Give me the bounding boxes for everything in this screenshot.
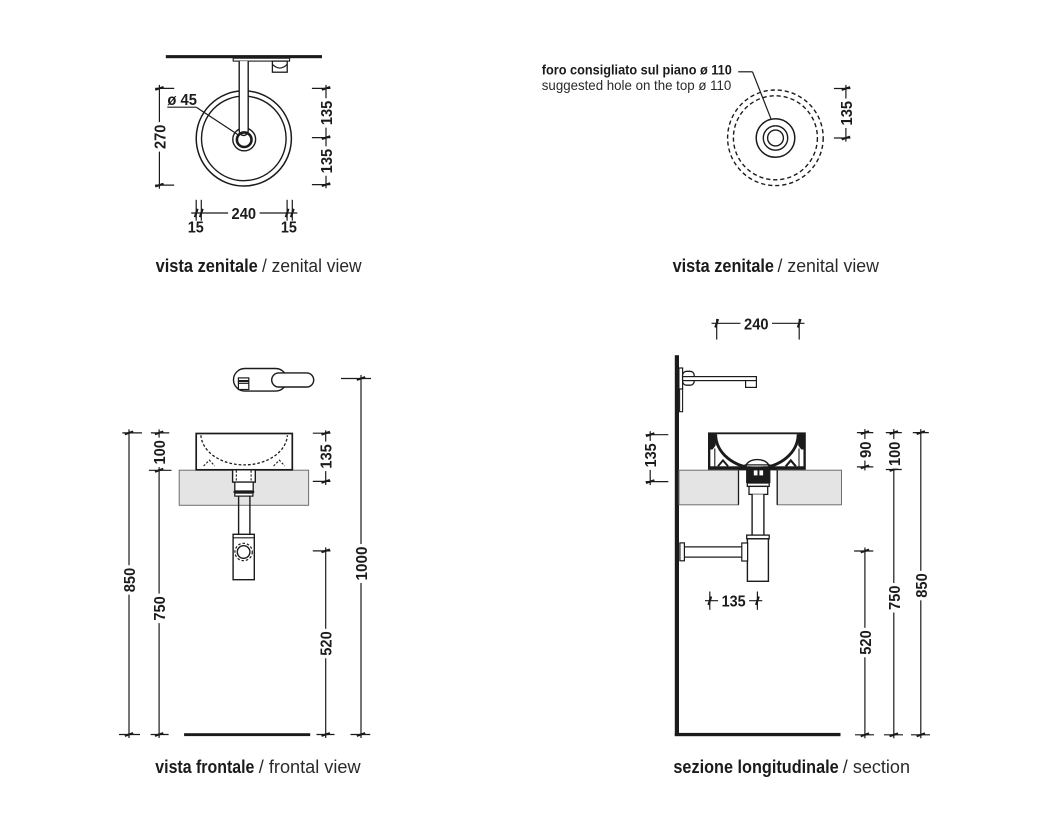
svg-text:vista zenitale: vista zenitale <box>156 256 258 276</box>
svg-text:270: 270 <box>152 124 169 149</box>
svg-text:90: 90 <box>858 441 875 458</box>
svg-text:/ frontal view: / frontal view <box>259 757 362 777</box>
svg-text:1000: 1000 <box>354 546 371 580</box>
svg-text:135: 135 <box>319 149 336 174</box>
svg-text:520: 520 <box>858 630 875 655</box>
svg-text:750: 750 <box>887 585 904 610</box>
svg-text:135: 135 <box>643 443 660 467</box>
svg-text:vista zenitale: vista zenitale <box>673 256 774 276</box>
svg-text:15: 15 <box>281 220 297 237</box>
svg-text:850: 850 <box>914 573 931 598</box>
svg-text:foro consigliato sul piano ø 1: foro consigliato sul piano ø 110 <box>542 63 732 78</box>
svg-text:520: 520 <box>319 631 336 656</box>
svg-text:sezione longitudinale: sezione longitudinale <box>673 757 838 777</box>
svg-text:750: 750 <box>152 596 169 621</box>
svg-text:135: 135 <box>839 101 856 126</box>
svg-text:suggested hole on the top ø 11: suggested hole on the top ø 110 <box>542 78 732 93</box>
svg-text:240: 240 <box>744 316 769 333</box>
svg-text:135: 135 <box>722 594 746 611</box>
svg-text:240: 240 <box>232 206 257 223</box>
svg-text:135: 135 <box>319 444 336 469</box>
svg-text:/ zenital view: / zenital view <box>778 256 880 276</box>
svg-text:vista frontale: vista frontale <box>155 757 254 777</box>
svg-text:ø 45: ø 45 <box>167 92 197 109</box>
svg-text:100: 100 <box>152 440 169 465</box>
svg-text:850: 850 <box>122 568 139 593</box>
svg-text:15: 15 <box>188 220 204 237</box>
svg-text:100: 100 <box>887 441 904 466</box>
svg-text:/ section: / section <box>843 757 910 777</box>
svg-text:135: 135 <box>319 101 336 126</box>
svg-text:/ zenital view: / zenital view <box>262 256 363 276</box>
